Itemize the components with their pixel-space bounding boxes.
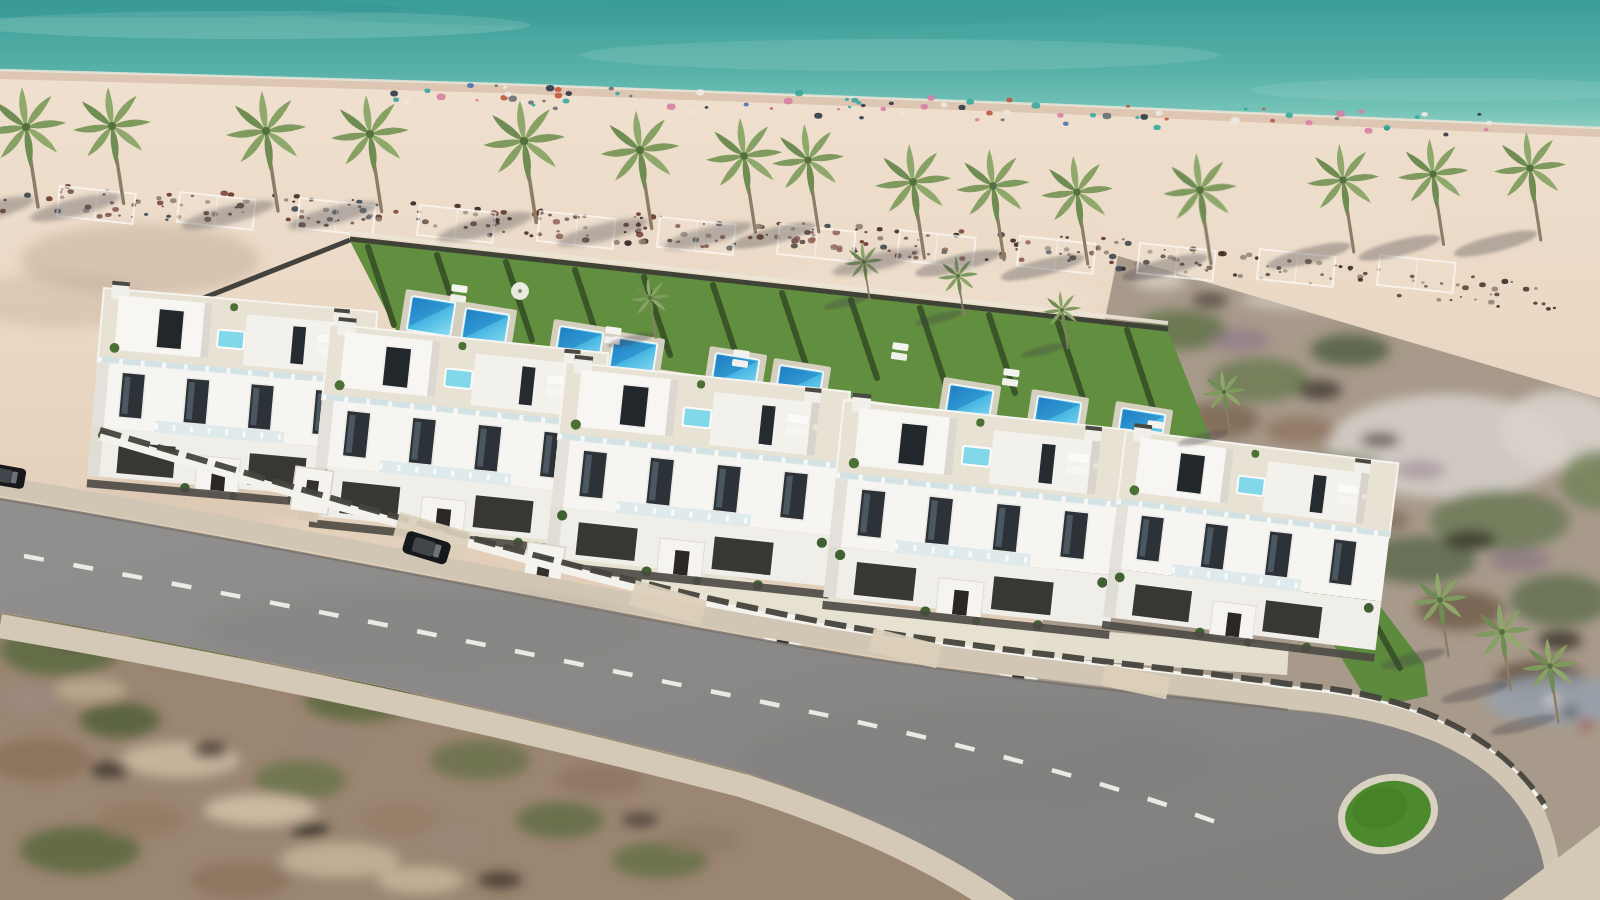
beach-towels (609, 87, 614, 91)
dirt-path (204, 794, 316, 826)
beach-towels (889, 101, 894, 105)
beach-debris (1534, 287, 1538, 290)
beach-towels (881, 107, 887, 111)
beach-towels (393, 98, 399, 102)
beach-towels (845, 98, 849, 101)
beach-towels (495, 85, 499, 88)
beach-debris (613, 240, 619, 245)
beach-towels (1090, 113, 1096, 117)
beach-debris (1060, 236, 1063, 238)
beach-debris (1490, 294, 1493, 296)
sea-streak (580, 39, 1220, 71)
beach-debris (529, 234, 533, 237)
beach-towels (814, 113, 822, 119)
beach-debris (165, 219, 168, 222)
beach-towels (966, 99, 974, 105)
beach-towels (1421, 112, 1427, 117)
beach-debris (1450, 299, 1453, 301)
beach-towels (1443, 132, 1448, 136)
beach-towels (795, 90, 803, 96)
beach-towels (542, 100, 546, 103)
beach-towels (1154, 125, 1161, 130)
beach-towels (861, 104, 866, 108)
beach-towels (696, 89, 704, 95)
beach-debris (1488, 300, 1494, 305)
beach-towels (546, 85, 554, 91)
beach-debris (864, 231, 867, 233)
beach-debris (1122, 238, 1125, 240)
beach-debris (1502, 279, 1509, 284)
beach-debris (639, 239, 647, 245)
beach-debris (352, 199, 355, 201)
beachfront-development-scene (0, 0, 1600, 900)
beach-debris (959, 229, 965, 233)
beach-debris (157, 201, 163, 206)
beach-debris (221, 191, 228, 197)
beach-towels (553, 106, 558, 110)
beach-towels (1484, 128, 1489, 132)
beach-towels (505, 92, 512, 97)
beach-towels (467, 83, 474, 88)
beach-debris (1104, 251, 1109, 255)
beach-towels (927, 95, 934, 101)
beach-towels (1306, 120, 1313, 125)
beach-debris (636, 212, 641, 216)
beach-debris (643, 227, 647, 230)
beach-towels (503, 86, 507, 89)
parasol-pole (518, 289, 522, 293)
beach-towels (667, 104, 676, 111)
beach-debris (860, 240, 865, 243)
beach-towels (1384, 125, 1391, 130)
beach-debris (1471, 275, 1475, 278)
beach-towels (1244, 108, 1248, 111)
beach-debris (1474, 299, 1477, 301)
beach-debris (524, 231, 529, 235)
beach-towels (859, 116, 864, 120)
beach-towels (959, 105, 966, 110)
beach-towels (1057, 113, 1063, 118)
beach-debris (294, 194, 300, 199)
beach-towels (1415, 115, 1420, 119)
beach-towels (563, 98, 570, 103)
parked-car (1544, 696, 1560, 704)
beach-debris (1460, 296, 1462, 298)
beach-debris (393, 210, 398, 214)
beach-towels (476, 99, 479, 101)
beach-debris (1109, 254, 1116, 260)
beach-debris (136, 200, 138, 202)
beach-towels (837, 108, 840, 111)
beach-towels (1286, 113, 1293, 118)
beach-towels (404, 99, 410, 103)
beach-debris (1542, 302, 1546, 305)
beach-towels (390, 91, 398, 97)
beach-towels (1032, 102, 1041, 108)
beach-towels (1006, 98, 1012, 103)
beach-towels (1477, 113, 1481, 116)
beach-debris (1109, 261, 1114, 265)
sea-streak (300, 3, 1100, 27)
beach-towels (1135, 116, 1139, 119)
beach-debris (156, 196, 161, 200)
beach-towels (1262, 108, 1266, 111)
beach-towels (566, 91, 572, 96)
beach-debris (286, 218, 291, 222)
beach-towels (1063, 122, 1069, 126)
beach-towels (1335, 117, 1340, 121)
beach-towels (1155, 110, 1162, 115)
beach-debris (1358, 278, 1363, 282)
beach-debris (634, 216, 637, 218)
beach-debris (1114, 241, 1118, 244)
beach-towels (901, 111, 906, 115)
beach-towels (744, 103, 749, 107)
beach-towels (629, 95, 633, 98)
beach-debris (1496, 305, 1499, 308)
beach-debris (46, 196, 53, 201)
beach-towels (555, 93, 563, 99)
beach-debris (1115, 266, 1122, 271)
beach-debris (880, 244, 887, 249)
beach-debris (1338, 265, 1342, 268)
beach-debris (863, 242, 868, 246)
beach-debris (1462, 285, 1469, 290)
beach-debris (877, 236, 883, 240)
beach-debris (1233, 273, 1237, 276)
beach-debris (1546, 307, 1551, 311)
beach-debris (144, 213, 148, 216)
beach-towels (941, 103, 947, 108)
beach-debris (1066, 236, 1069, 238)
dirt-path (280, 842, 400, 878)
beach-towels (770, 107, 773, 109)
beach-debris (1363, 272, 1368, 276)
beach-towels (705, 106, 709, 109)
parked-car (1578, 720, 1594, 728)
beach-towels (1165, 117, 1169, 120)
beach-towels (921, 104, 928, 110)
beach-debris (1553, 307, 1556, 309)
beach-towels (1486, 121, 1492, 125)
beach-debris (284, 198, 288, 201)
beach-debris (1101, 237, 1106, 241)
beach-towels (532, 104, 536, 107)
beach-towels (1126, 105, 1130, 108)
beach-towels (615, 92, 620, 96)
beach-debris (1348, 266, 1354, 270)
beach-debris (1492, 287, 1499, 292)
beach-towels (1140, 114, 1148, 120)
beach-towels (1001, 118, 1005, 121)
beach-debris (1456, 283, 1460, 286)
beach-towels (1270, 119, 1275, 123)
beach-towels (856, 101, 861, 105)
beach-debris (167, 193, 172, 197)
beach-towels (1103, 113, 1112, 120)
beach-debris (1240, 255, 1247, 260)
beach-debris (411, 201, 417, 205)
beach-towels (555, 87, 562, 92)
beach-debris (1436, 298, 1441, 302)
beach-debris (1523, 287, 1529, 292)
beach-debris (624, 240, 631, 246)
beach-towels (437, 94, 446, 101)
beach-towels (986, 111, 993, 116)
beach-debris (1246, 253, 1252, 258)
beach-debris (1218, 251, 1225, 256)
beach-towels (424, 88, 430, 93)
beach-towels (1357, 126, 1360, 128)
beach-towels (848, 106, 851, 108)
beach-towels (1365, 128, 1373, 134)
beach-debris (1238, 274, 1243, 278)
beach-debris (292, 200, 295, 202)
beach-debris (1533, 302, 1537, 305)
parked-car (1562, 708, 1578, 716)
beach-debris (1010, 239, 1016, 243)
beach-debris (1511, 281, 1513, 283)
beach-debris (1125, 241, 1132, 246)
beach-debris (376, 217, 382, 222)
beach-debris (166, 215, 171, 219)
asphalt-shade (1170, 780, 1510, 900)
beach-towels (1231, 117, 1240, 124)
beach-towels (975, 118, 980, 122)
beach-debris (162, 205, 164, 207)
beach-towels (784, 98, 793, 105)
aerial-render-image (0, 0, 1600, 900)
beach-towels (509, 96, 517, 102)
beach-debris (170, 198, 177, 203)
beach-towels (1359, 110, 1365, 114)
beach-debris (1494, 293, 1499, 297)
beach-debris (877, 227, 883, 231)
beach-towels (1004, 110, 1011, 115)
beach-towels (1336, 111, 1345, 118)
beach-towels (691, 110, 696, 114)
beach-debris (855, 228, 858, 230)
beach-debris (1397, 294, 1402, 298)
beach-debris (1479, 282, 1486, 287)
